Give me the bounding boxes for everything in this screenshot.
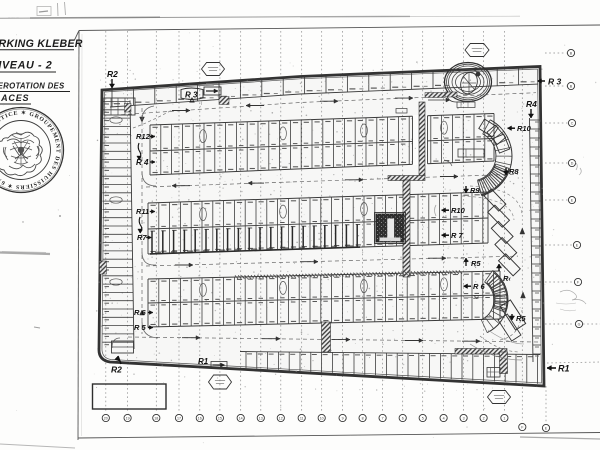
svg-text:13: 13 [259,417,263,421]
svg-text:1: 1 [503,417,505,421]
svg-text:R 5: R 5 [134,323,147,332]
svg-text:8: 8 [362,417,364,421]
svg-text:12: 12 [279,417,283,421]
svg-text:R‹: R‹ [503,274,511,283]
svg-text:PLACES: PLACES [0,93,29,103]
svg-text:16: 16 [198,417,202,421]
svg-text:17: 17 [177,417,181,421]
svg-text:PARKING KLEBER: PARKING KLEBER [0,38,83,50]
svg-text:R8: R8 [509,167,519,176]
svg-text:9: 9 [342,417,344,421]
svg-text:R7: R7 [137,233,147,242]
svg-text:R9: R9 [470,186,480,195]
svg-text:7: 7 [382,417,384,421]
svg-text:NUMEROTATION DES: NUMEROTATION DES [0,82,65,91]
svg-text:R2: R2 [111,365,122,375]
svg-text:15: 15 [218,417,222,421]
svg-text:R 4: R 4 [136,158,149,167]
svg-text:R10: R10 [451,206,466,215]
svg-text:R 6: R 6 [473,282,486,291]
svg-text:R1: R1 [558,364,570,374]
svg-text:R 6: R 6 [134,308,147,317]
svg-text:2: 2 [483,417,485,421]
svg-text:R2: R2 [107,69,118,79]
svg-text:|: | [201,100,202,105]
svg-text:R 7: R 7 [451,231,464,240]
svg-text:~·~··~: ~·~··~ [8,15,20,20]
svg-text:R4: R4 [526,99,537,109]
svg-text:R5: R5 [471,259,481,268]
svg-text:5: 5 [422,417,424,421]
svg-text:4: 4 [443,417,445,421]
svg-text:D: D [571,161,574,165]
svg-text:—32—: —32— [467,295,485,301]
svg-text:19: 19 [126,417,130,421]
svg-text:R12: R12 [136,132,151,141]
svg-text:R11: R11 [136,207,149,216]
svg-text:20: 20 [104,417,108,421]
svg-text:6: 6 [402,417,404,421]
svg-text:18: 18 [154,417,158,421]
svg-text:G: G [578,322,581,326]
svg-text:14: 14 [239,417,243,421]
svg-text:3: 3 [463,417,465,421]
svg-text:R5: R5 [516,314,526,323]
svg-text:11: 11 [300,417,304,421]
svg-text:R 3: R 3 [548,77,562,87]
svg-text:R1: R1 [198,357,209,366]
svg-text:C: C [571,121,574,125]
svg-text:NIVEAU - 2: NIVEAU - 2 [0,60,52,72]
svg-text:10: 10 [320,417,324,421]
svg-text:R10: R10 [517,124,532,133]
